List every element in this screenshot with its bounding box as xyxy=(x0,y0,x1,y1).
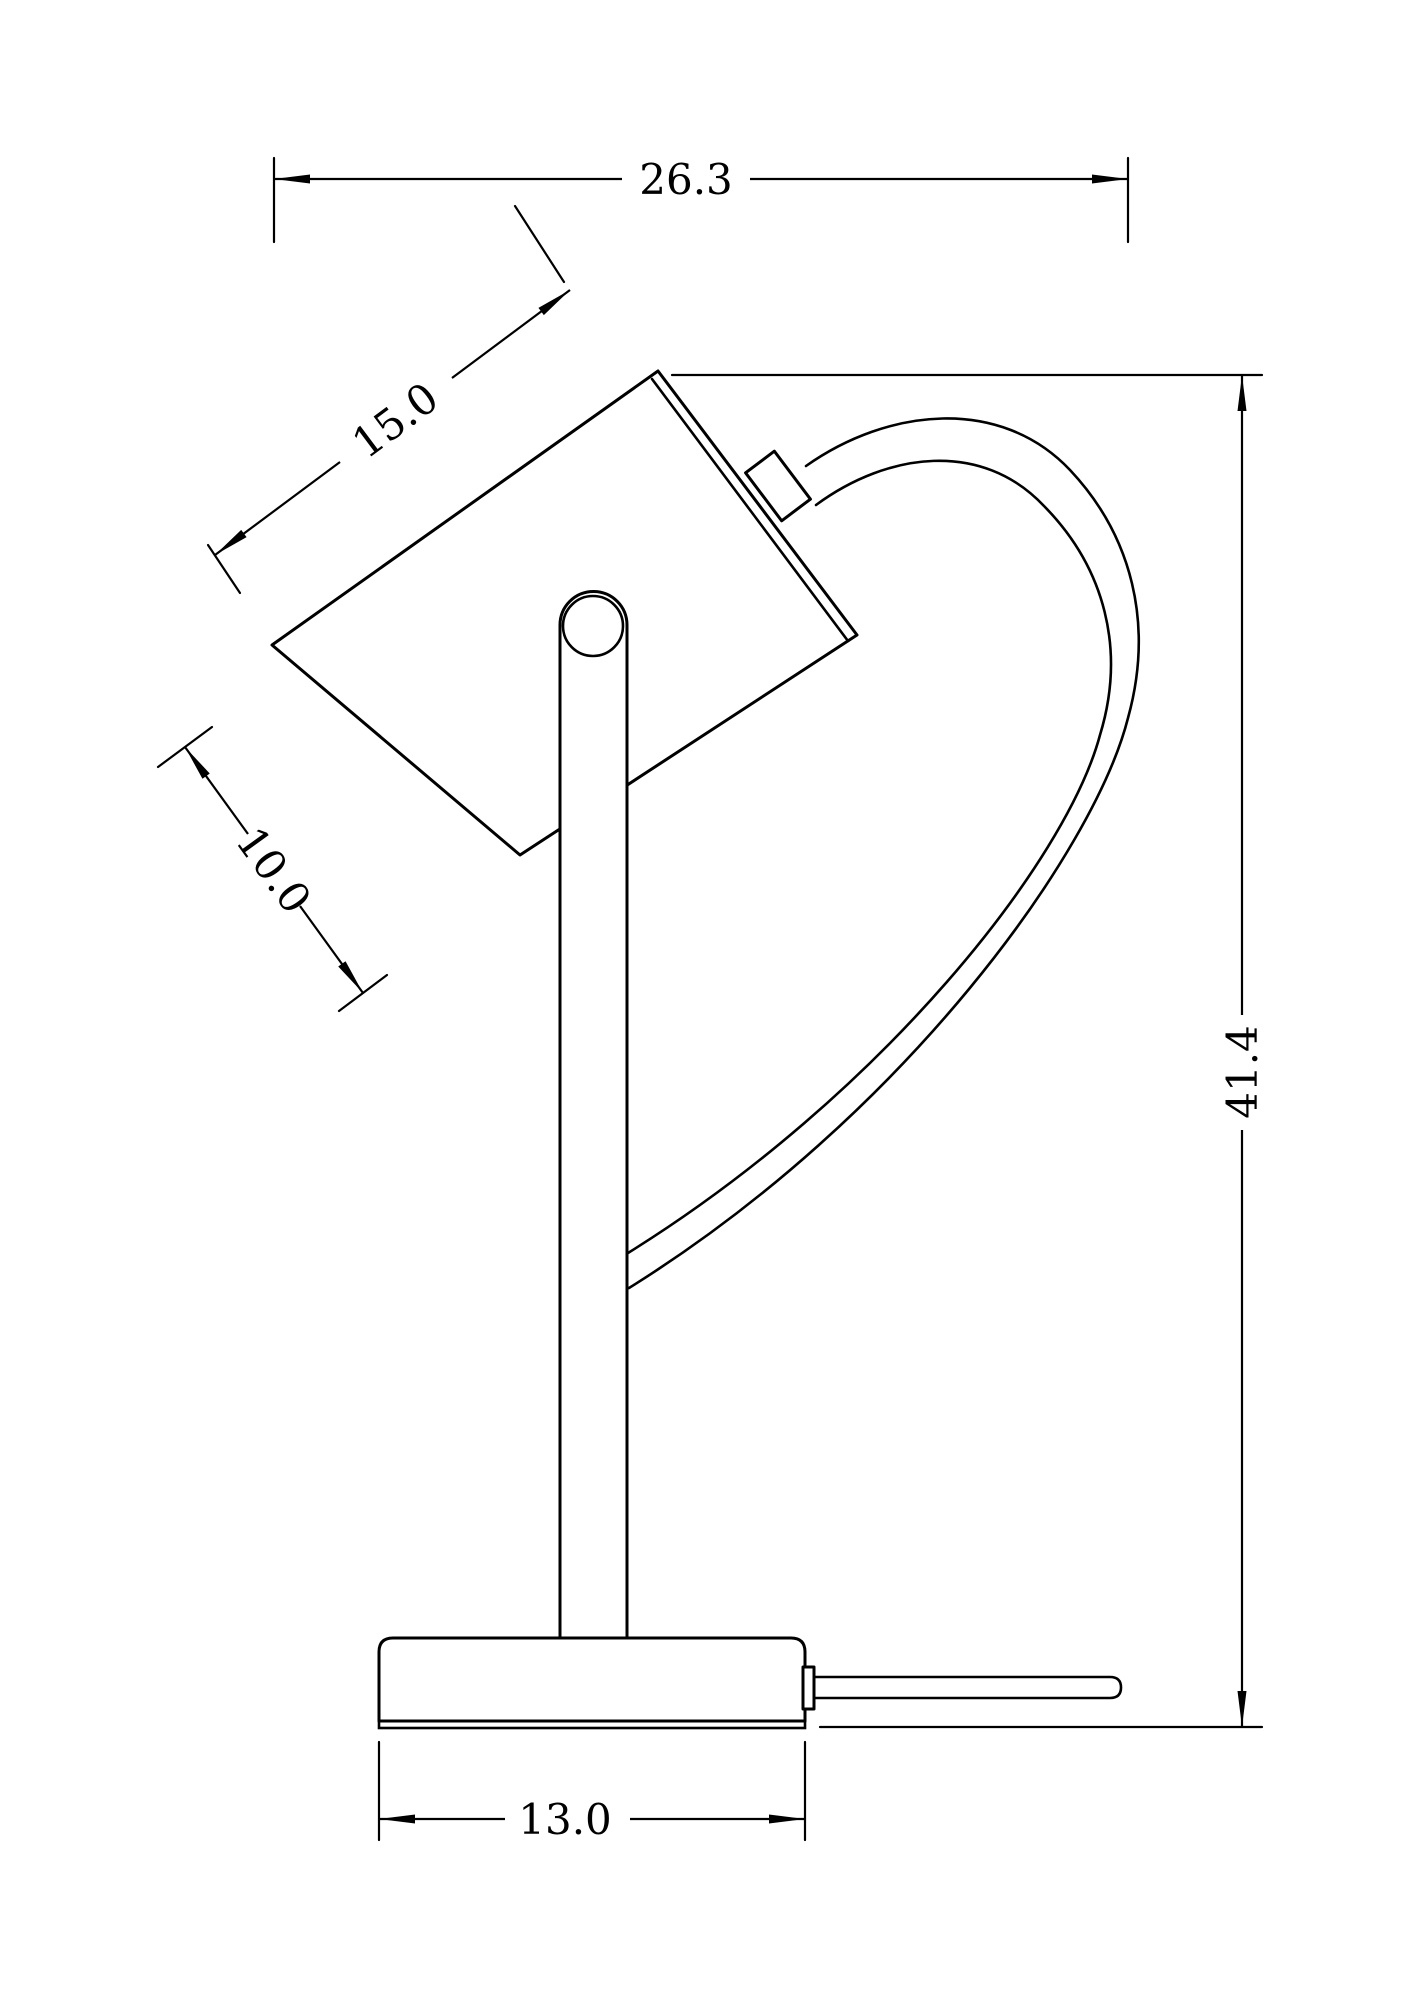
dimension-base-width: 13.0 xyxy=(379,1742,805,1844)
dimension-line-upper-segment xyxy=(452,290,570,378)
dimension-shade-diameter: 10.0 xyxy=(158,727,387,1011)
lamp-technical-drawing: 26.3 15.0 10.0 41.4 xyxy=(0,0,1414,2000)
power-cord xyxy=(814,1677,1121,1698)
dimension-overall-width: 26.3 xyxy=(274,155,1128,242)
lamp-pole xyxy=(560,591,627,1638)
lamp-base xyxy=(379,1638,805,1721)
technical-drawing-page: 26.3 15.0 10.0 41.4 xyxy=(0,0,1414,2000)
extension-tick-lower xyxy=(208,545,240,593)
shade-diameter-label: 10.0 xyxy=(226,818,321,922)
dimension-line-lower-segment xyxy=(215,462,340,555)
base-bottom-plate xyxy=(379,1721,805,1728)
extension-line-upper xyxy=(515,206,564,282)
shade-length-label: 15.0 xyxy=(343,373,447,468)
dimension-line-lower-segment xyxy=(300,906,363,993)
cord-connector xyxy=(803,1667,814,1709)
dimension-line-upper-segment xyxy=(185,747,248,834)
overall-width-label: 26.3 xyxy=(639,155,733,204)
overall-height-label: 41.4 xyxy=(1218,1025,1267,1119)
base-width-label: 13.0 xyxy=(518,1795,612,1844)
lamp-figure xyxy=(272,371,1139,1728)
